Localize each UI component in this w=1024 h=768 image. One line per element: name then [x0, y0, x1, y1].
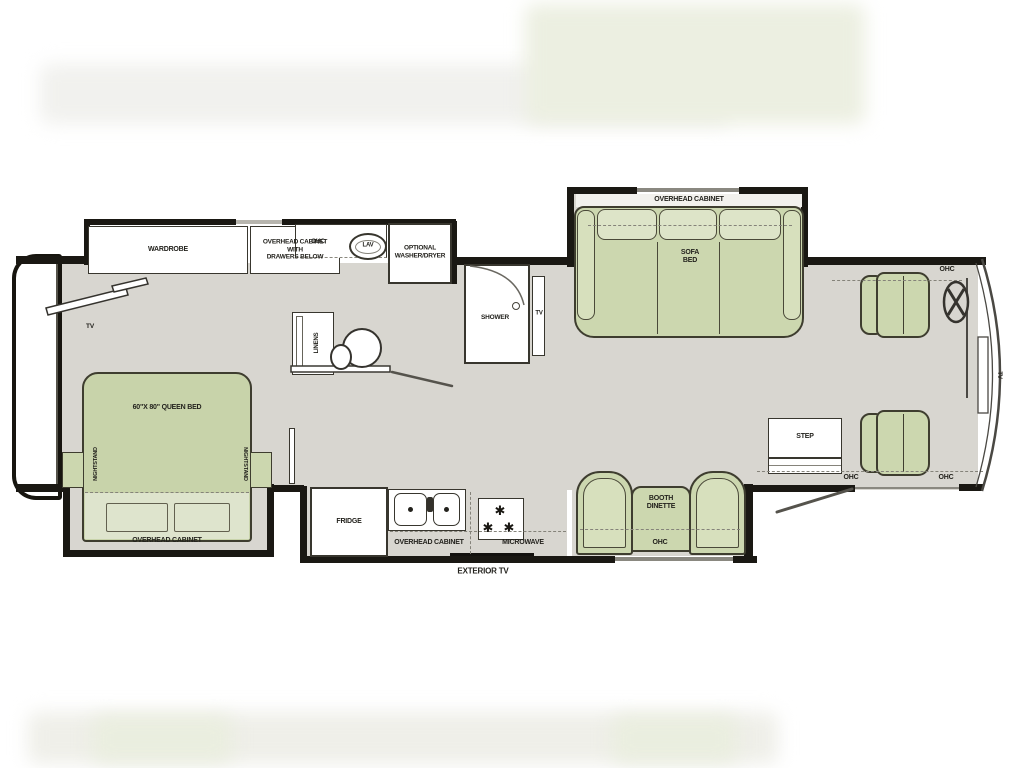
bed-overhead-cabinet-label: OVERHEAD CABINET	[132, 537, 202, 545]
nightstand-left-label: NIGHTSTAND	[93, 447, 99, 481]
queen-bed-label: 60"X 80" QUEEN BED	[133, 404, 202, 412]
shower-door-arc	[470, 266, 524, 305]
tv-bath-label: TV	[535, 310, 542, 317]
detail-overlay	[0, 0, 1024, 768]
sofa-bed-label: SOFA BED	[681, 249, 699, 266]
ohc-cockpit-top-label: OHC	[940, 266, 955, 274]
rv-floorplan-canvas: ✱ ✱ ✱	[0, 0, 1024, 768]
shower-label: SHOWER	[481, 314, 509, 322]
kitchen-overhead-cabinet-label: OVERHEAD CABINET	[394, 539, 464, 547]
ohc-cockpit-bottom-label: OHC	[939, 474, 954, 482]
step-label: STEP	[796, 433, 813, 441]
booth-dinette-label: BOOTH DINETTE	[647, 495, 676, 512]
ohc-entry-label: OHC	[844, 474, 859, 482]
fridge-label: FRIDGE	[336, 518, 361, 526]
dinette-ohc-label: OHC	[653, 539, 668, 547]
bath-door-swing	[392, 372, 452, 386]
nightstand-right-label: NIGHTSTAND	[242, 447, 248, 481]
toilet-tank	[331, 345, 351, 369]
microwave-label: MICROWAVE	[502, 539, 544, 547]
exterior-tv-label: EXTERIOR TV	[457, 566, 508, 575]
ohc-bath-label: OHC	[311, 238, 325, 246]
entry-door-swing	[777, 489, 852, 512]
tv-bedroom-label: TV	[86, 323, 94, 331]
wardrobe-label: WARDROBE	[148, 246, 188, 254]
sofa-overhead-cabinet-label: OVERHEAD CABINET	[654, 196, 724, 204]
linens-label: LINENS	[314, 333, 320, 354]
front-tv-cabinet	[978, 337, 988, 413]
washer-dryer-label: OPTIONAL WASHER/DRYER	[395, 244, 445, 259]
lav-label: LAV	[363, 242, 374, 249]
tv-front-label: TV	[996, 371, 1002, 378]
bedroom-tv-bracket	[112, 278, 148, 292]
